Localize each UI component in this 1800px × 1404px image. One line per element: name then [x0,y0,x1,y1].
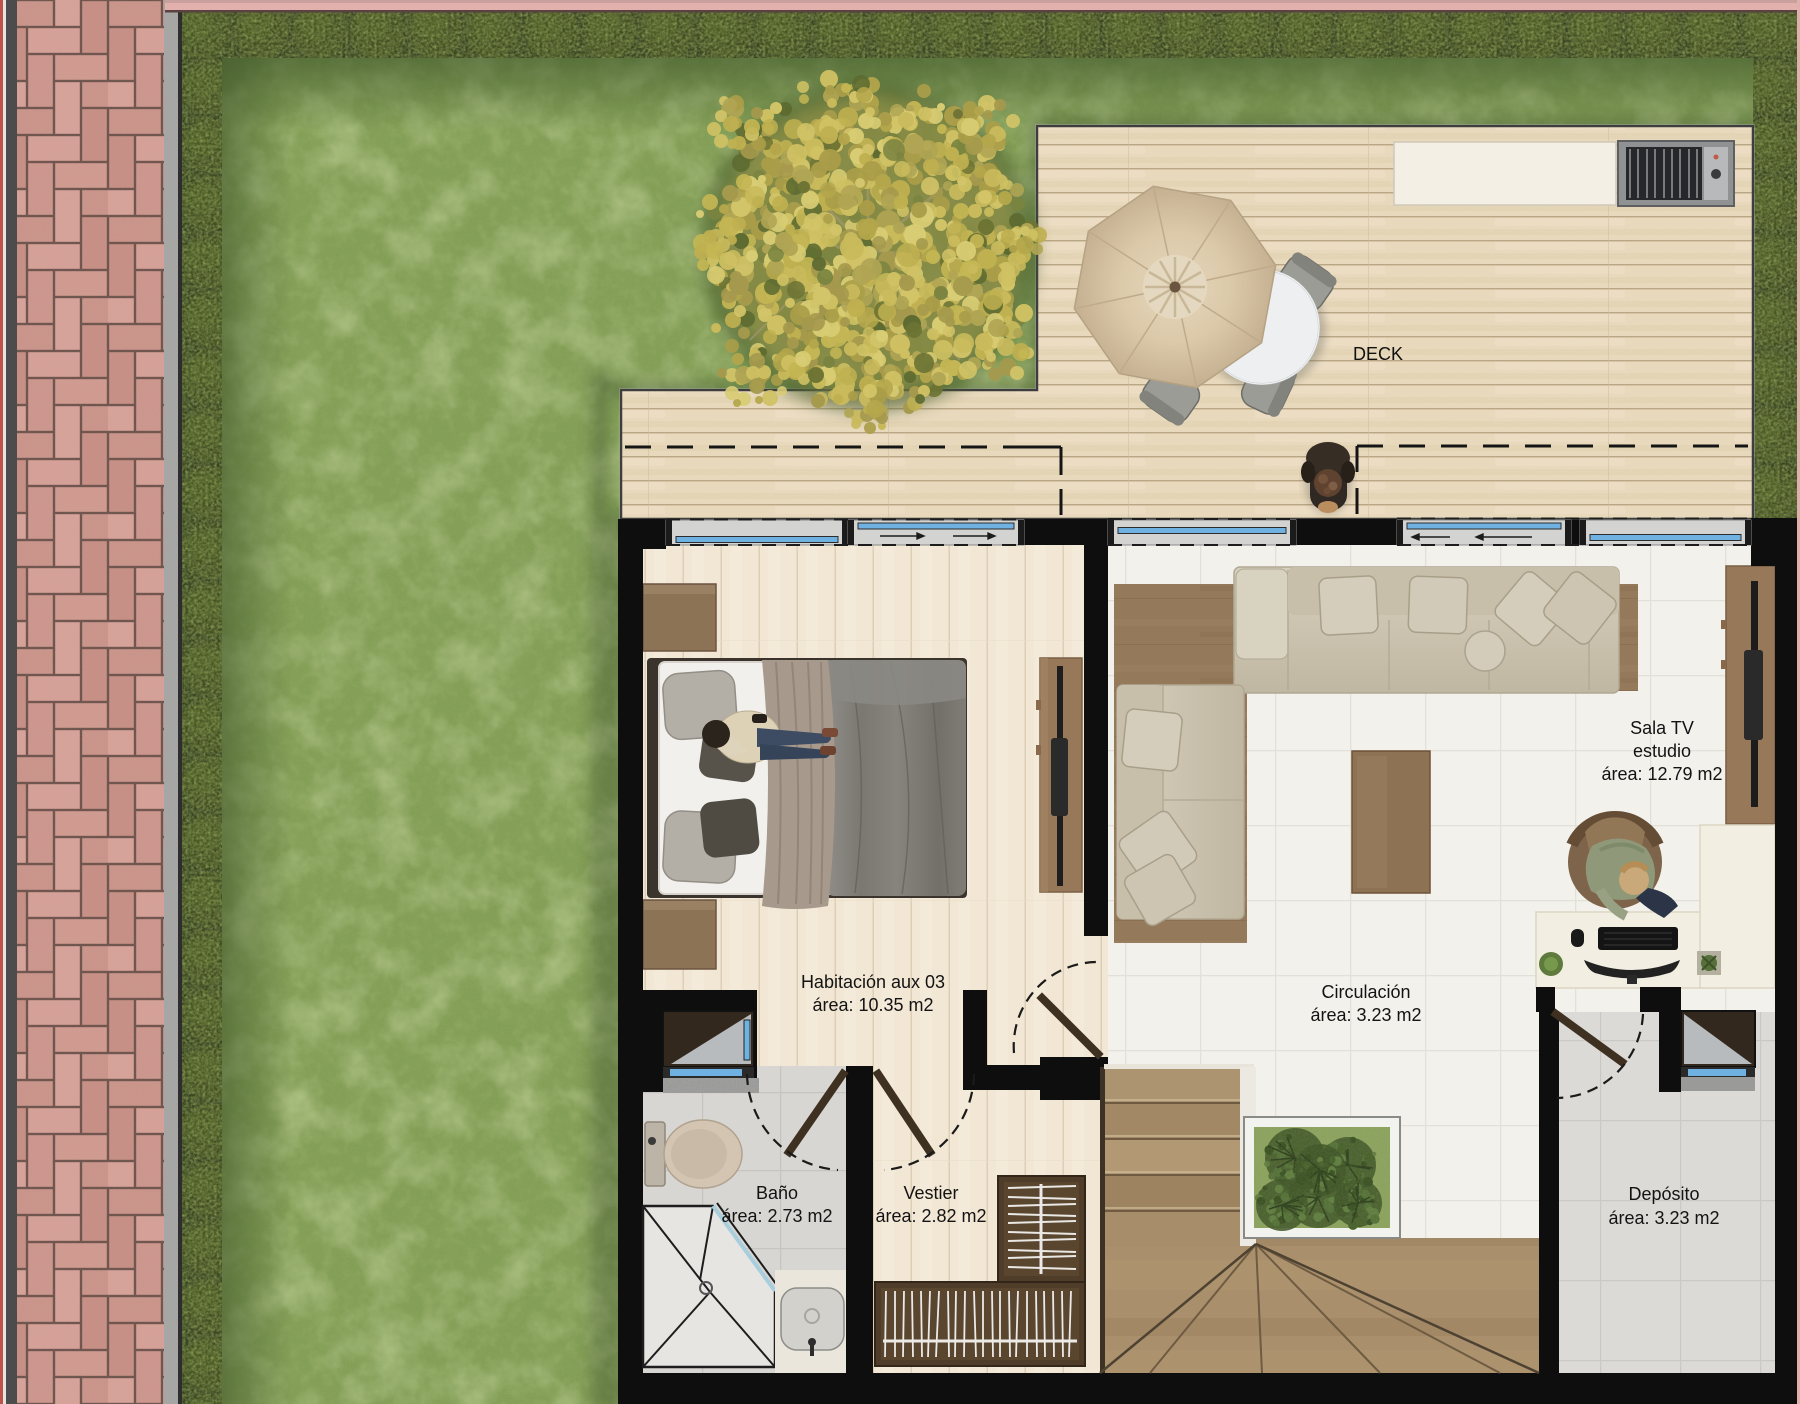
svg-text:área: 3.23 m2: área: 3.23 m2 [1608,1208,1719,1228]
svg-text:Baño: Baño [756,1183,798,1203]
svg-text:área: 2.73 m2: área: 2.73 m2 [721,1206,832,1226]
svg-text:Habitación aux 03: Habitación aux 03 [801,972,945,992]
svg-text:área: 3.23 m2: área: 3.23 m2 [1310,1005,1421,1025]
svg-text:área: 12.79 m2: área: 12.79 m2 [1601,764,1722,784]
svg-text:Depósito: Depósito [1628,1184,1699,1204]
svg-text:Vestier: Vestier [903,1183,958,1203]
svg-text:Sala TV: Sala TV [1630,718,1694,738]
svg-text:DECK: DECK [1353,344,1403,364]
svg-text:estudio: estudio [1633,741,1691,761]
svg-text:Circulación: Circulación [1321,982,1410,1002]
svg-text:área: 2.82 m2: área: 2.82 m2 [875,1206,986,1226]
svg-text:área: 10.35 m2: área: 10.35 m2 [812,995,933,1015]
